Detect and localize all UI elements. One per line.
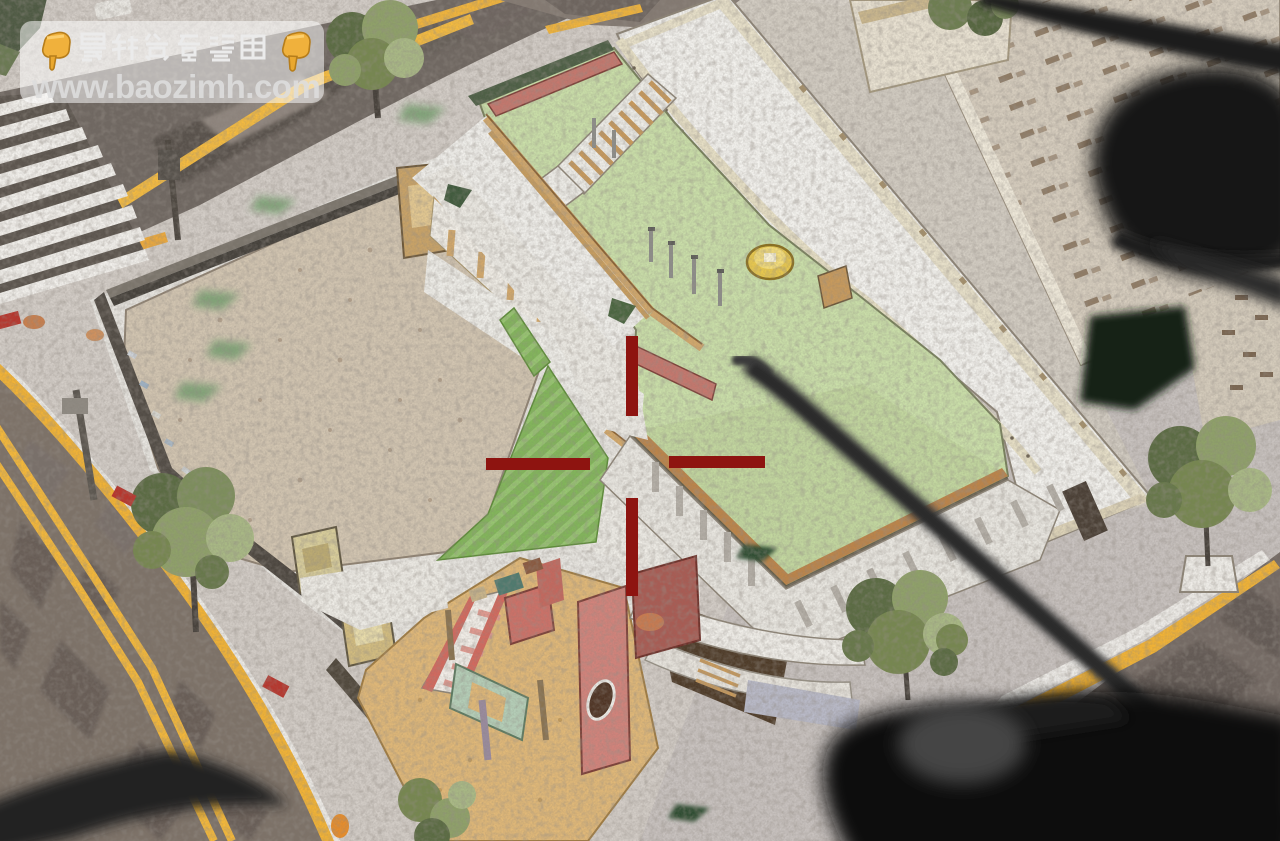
svg-text:www.baozimh.com: www.baozimh.com [31, 68, 320, 105]
